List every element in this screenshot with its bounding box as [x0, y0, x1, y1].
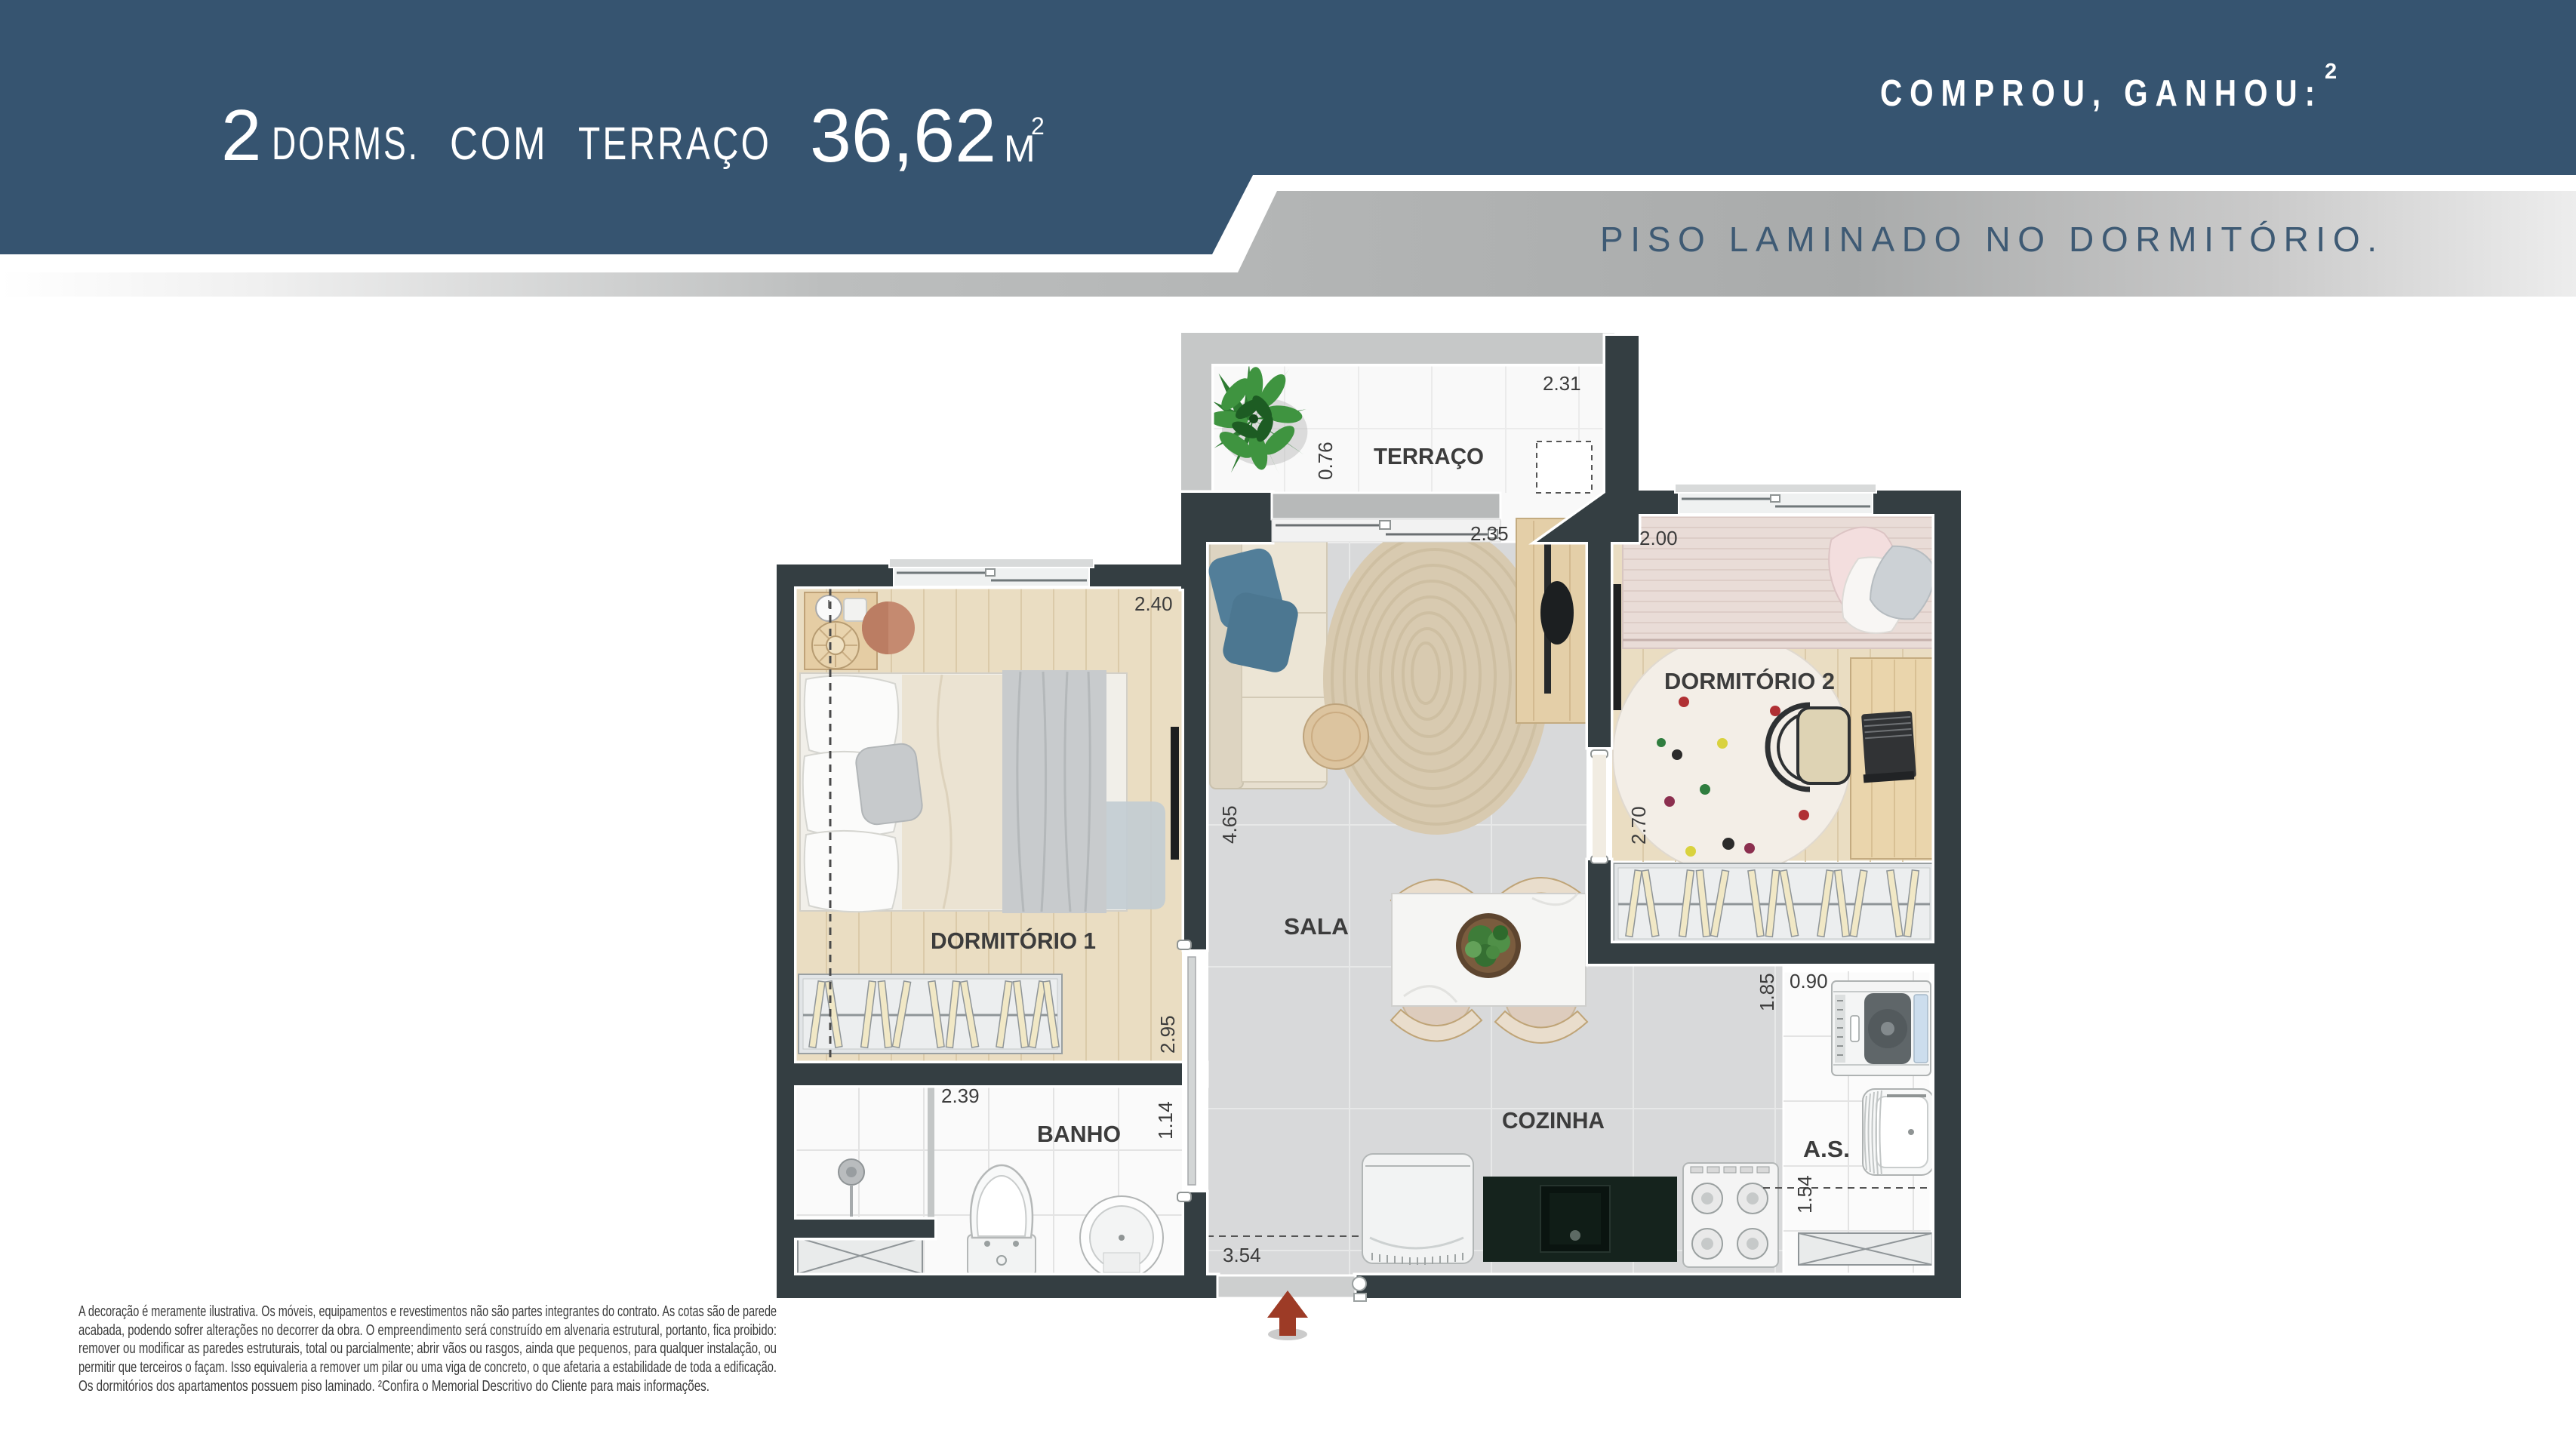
svg-text:TERRAÇO: TERRAÇO [1374, 443, 1484, 469]
svg-text:2.31: 2.31 [1543, 372, 1581, 395]
svg-text:2.40: 2.40 [1134, 592, 1173, 615]
svg-text:TERRAÇO: TERRAÇO [578, 118, 771, 169]
svg-text:1.14: 1.14 [1154, 1101, 1177, 1140]
svg-text:PISO LAMINADO NO DORMITÓRIO.: PISO LAMINADO NO DORMITÓRIO. [1600, 220, 2386, 259]
svg-text:3.54: 3.54 [1223, 1244, 1261, 1266]
svg-text:A.S.: A.S. [1803, 1136, 1850, 1162]
svg-text:1.85: 1.85 [1756, 973, 1778, 1011]
svg-text:2.00: 2.00 [1639, 527, 1678, 549]
svg-text:COZINHA: COZINHA [1502, 1107, 1605, 1134]
svg-text:2.35: 2.35 [1470, 522, 1509, 545]
svg-text:SALA: SALA [1284, 913, 1349, 940]
svg-text:36,62: 36,62 [810, 94, 996, 178]
svg-text:acabada, podendo sofrer altera: acabada, podendo sofrer alterações no de… [78, 1322, 777, 1339]
svg-text:permitir que terceiros o façam: permitir que terceiros o façam. Isso equ… [78, 1359, 777, 1376]
svg-text:DORMITÓRIO 1: DORMITÓRIO 1 [931, 927, 1096, 954]
svg-text:4.65: 4.65 [1218, 805, 1241, 844]
svg-text:0.76: 0.76 [1314, 441, 1337, 480]
svg-text:COMPROU, GANHOU:: COMPROU, GANHOU: [1880, 73, 2322, 114]
svg-text:0.90: 0.90 [1790, 970, 1828, 992]
svg-text:2: 2 [1031, 112, 1045, 140]
svg-text:2: 2 [2325, 60, 2337, 84]
svg-text:2.70: 2.70 [1627, 806, 1650, 844]
svg-text:1.54: 1.54 [1793, 1175, 1816, 1214]
svg-text:remover ou modificar as parede: remover ou modificar as paredes estrutur… [78, 1340, 777, 1357]
svg-text:DORMITÓRIO 2: DORMITÓRIO 2 [1664, 667, 1835, 694]
svg-text:A decoração é meramente ilustr: A decoração é meramente ilustrativa. Os … [78, 1303, 777, 1320]
svg-text:2.95: 2.95 [1156, 1015, 1179, 1054]
svg-text:2.39: 2.39 [941, 1084, 980, 1107]
svg-text:COM: COM [450, 118, 548, 169]
svg-text:BANHO: BANHO [1037, 1121, 1121, 1147]
svg-text:DORMS.: DORMS. [272, 118, 420, 169]
svg-text:2: 2 [221, 95, 261, 176]
svg-text:Os dormitórios dos apartamento: Os dormitórios dos apartamentos possuem … [78, 1378, 709, 1395]
